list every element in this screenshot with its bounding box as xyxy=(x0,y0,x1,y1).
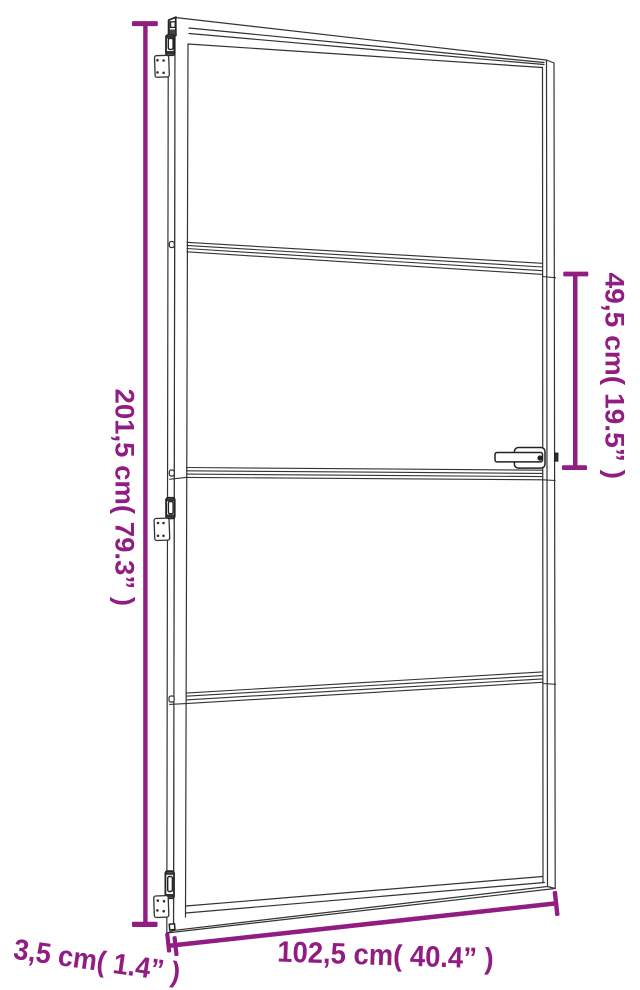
svg-text:49,5 cm( 19.5” ): 49,5 cm( 19.5” ) xyxy=(600,273,630,480)
svg-text:201,5 cm( 79.3” ): 201,5 cm( 79.3” ) xyxy=(110,389,140,607)
